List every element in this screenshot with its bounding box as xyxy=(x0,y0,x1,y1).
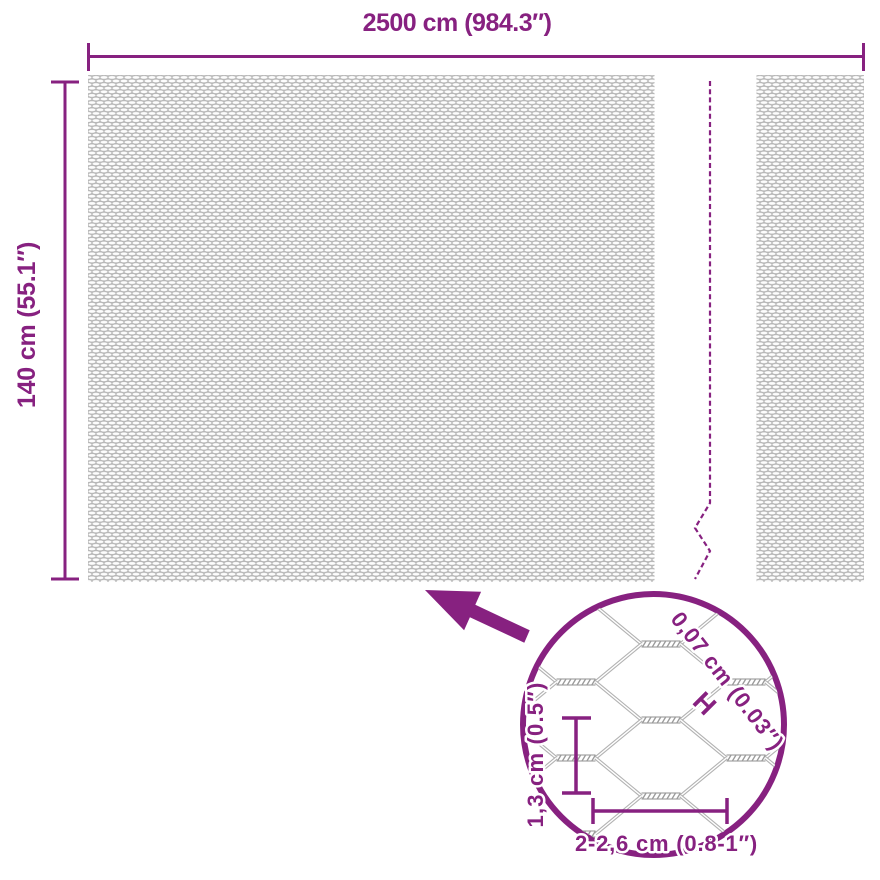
svg-text:140 cm (55.1″): 140 cm (55.1″) xyxy=(13,242,41,408)
svg-text:1,3 cm (0.5″): 1,3 cm (0.5″) xyxy=(523,682,548,828)
svg-text:2-2,6 cm (0.8-1″): 2-2,6 cm (0.8-1″) xyxy=(575,831,758,856)
svg-text:2500 cm (984.3″): 2500 cm (984.3″) xyxy=(363,9,552,37)
